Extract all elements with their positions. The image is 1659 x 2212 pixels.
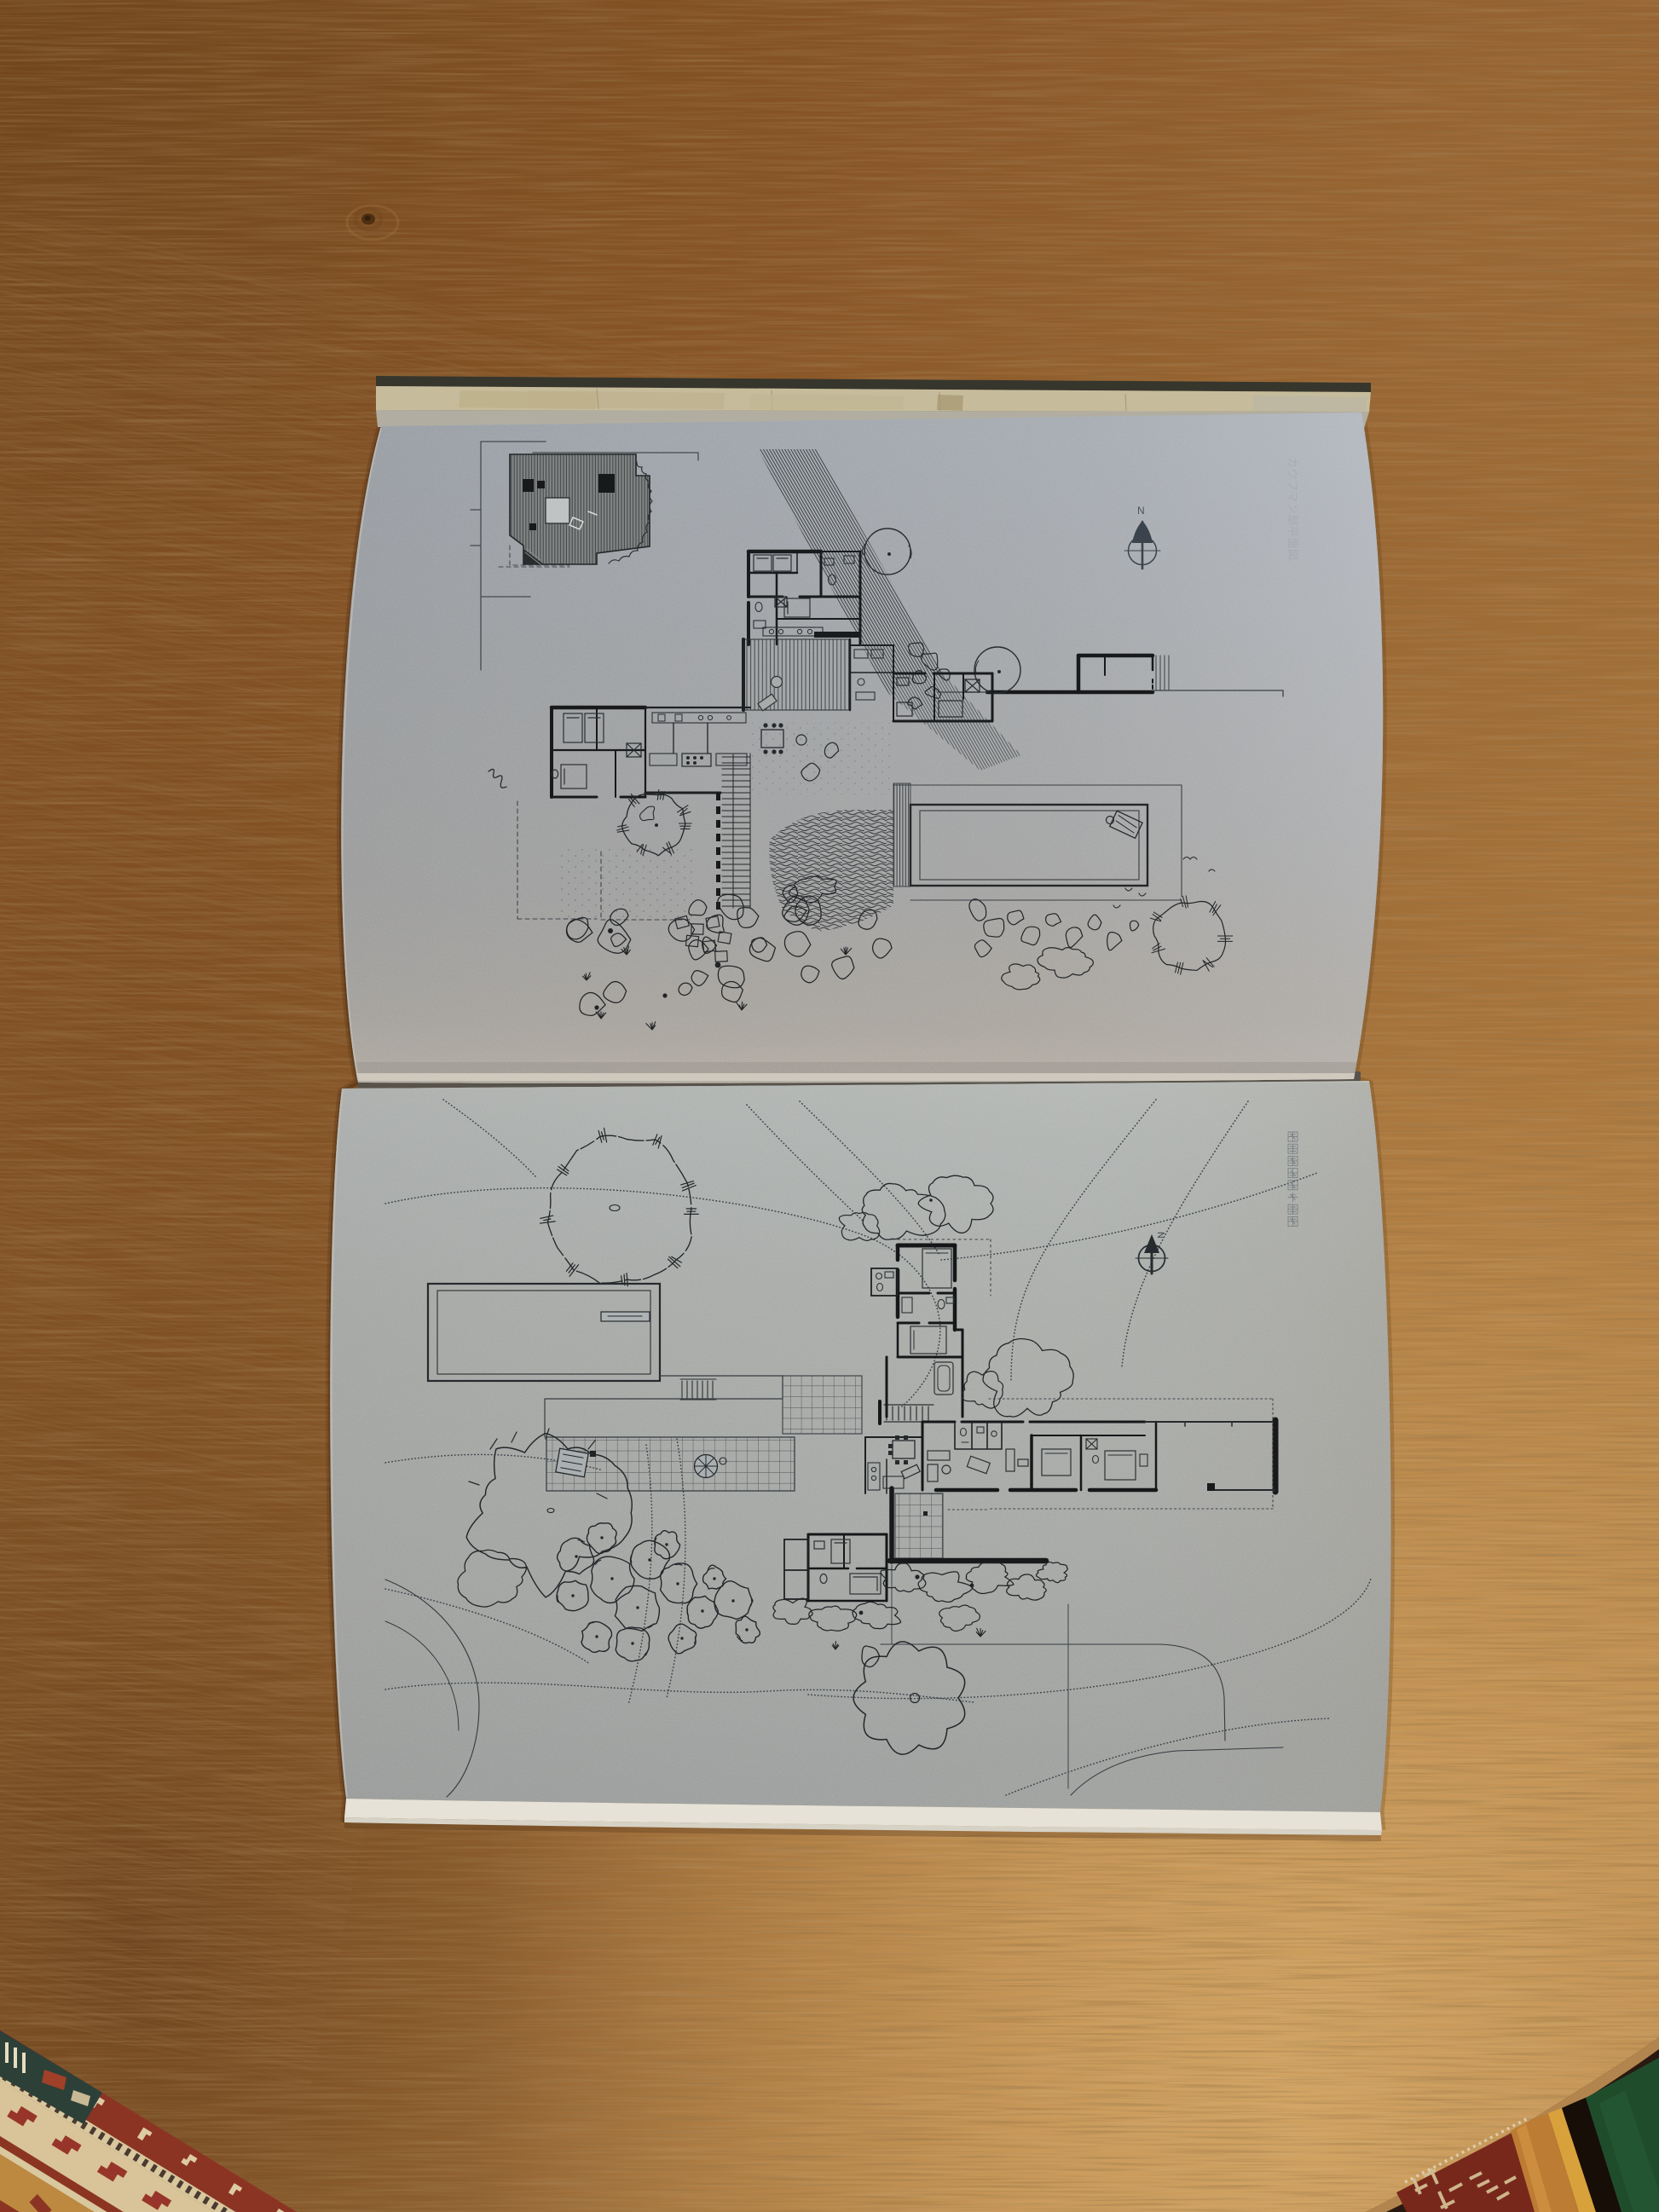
svg-text:N: N — [1155, 1232, 1165, 1239]
svg-text:N: N — [1137, 505, 1145, 517]
svg-text:カウフマン邸平面図: カウフマン邸平面図 — [1286, 457, 1299, 561]
